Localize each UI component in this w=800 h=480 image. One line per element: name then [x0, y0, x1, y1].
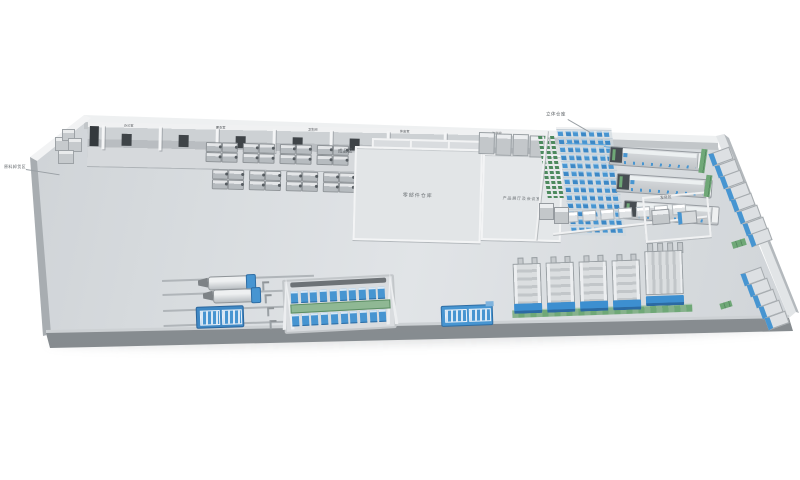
conveyor-stand [262, 281, 269, 290]
storage-bin [584, 155, 590, 160]
assembly-station [368, 287, 376, 299]
desk [228, 170, 244, 180]
storage-bin [606, 148, 612, 153]
assembly-station [378, 287, 386, 299]
desk [249, 180, 265, 190]
storage-bin [608, 164, 614, 169]
door-opening [178, 135, 188, 147]
storage-bin [560, 147, 566, 152]
desk [212, 179, 228, 189]
assembly-station [369, 310, 377, 322]
assembly-line [282, 274, 397, 334]
right-wall-machine [708, 147, 733, 167]
workbench [618, 207, 633, 219]
office-room-label: 休息室 [400, 129, 410, 134]
desk [323, 172, 339, 182]
door-opening [122, 134, 132, 146]
cable-line [604, 146, 695, 158]
desk [286, 181, 302, 191]
storage-bin [563, 171, 569, 176]
storage-bin [598, 148, 604, 153]
desk [206, 142, 222, 152]
desk [259, 143, 275, 153]
desk-cluster [249, 170, 280, 190]
partition-wall [158, 126, 162, 150]
press-base [646, 295, 684, 306]
desk [222, 142, 238, 152]
storage-bin [571, 171, 577, 176]
crate [58, 150, 74, 164]
desk [323, 182, 339, 192]
assembly-station [339, 289, 347, 301]
desk [339, 172, 355, 182]
storage-bin [565, 131, 571, 136]
storage-bin [583, 203, 589, 208]
desk-cluster [323, 172, 354, 192]
office-room-label: 更衣室 [216, 125, 226, 130]
lathe-body [213, 288, 255, 303]
storage-bin [594, 172, 600, 177]
storage-bin [572, 179, 578, 184]
desk [212, 169, 228, 179]
storage-bin [591, 203, 597, 208]
utility-machine [554, 207, 569, 224]
storage-bin [587, 179, 593, 184]
desk [242, 153, 258, 163]
storage-bin [591, 148, 597, 153]
green-rack-strip [703, 175, 712, 198]
machine-pad [469, 308, 491, 322]
storage-bin [612, 188, 618, 193]
desk-area [205, 142, 356, 201]
packing-machine [441, 304, 494, 327]
storage-bin [605, 196, 611, 201]
production-line-part [619, 176, 623, 187]
storage-bin [559, 139, 565, 144]
green-pallet [731, 238, 746, 249]
storage-bin [558, 131, 564, 136]
assembly-top-rail [290, 278, 386, 288]
showroom-label: 产品展厅及会议室 [503, 194, 542, 201]
assembly-station [340, 312, 348, 324]
assembly-station [331, 312, 339, 324]
lathe-hopper [198, 278, 208, 288]
lathe-cap [251, 287, 262, 303]
desk [205, 152, 221, 162]
desk [265, 181, 281, 191]
warehouse-room: 零部件仓库 [353, 146, 483, 243]
desk-cluster [242, 143, 273, 163]
cabinet [478, 132, 495, 154]
conveyor-stand [265, 294, 272, 303]
outside-area-label: 原料卸货区 [4, 163, 26, 169]
assembly-station [300, 291, 308, 303]
press-base [613, 299, 641, 310]
storage-bin [592, 156, 598, 161]
production-line-part [623, 153, 627, 157]
assembly-station [310, 290, 318, 302]
storage-bin [585, 163, 591, 168]
desk [296, 144, 312, 154]
storage-bin [597, 196, 603, 201]
storage-bin [564, 179, 570, 184]
storage-bin [578, 163, 584, 168]
press-base [547, 302, 575, 313]
assembly-station [360, 311, 368, 323]
assembly-station [349, 288, 357, 300]
storage-bin [611, 180, 617, 185]
right-wall-machine [740, 267, 765, 287]
storage-bin [596, 188, 602, 193]
storage-bin [561, 155, 567, 160]
office-room-label: 卫生间 [308, 127, 318, 132]
storage-bin [590, 195, 596, 200]
production-line-part [630, 176, 704, 185]
storage-bin [565, 187, 571, 192]
desk-cluster [206, 142, 237, 162]
right-wall-machine [714, 158, 739, 178]
desk [339, 182, 355, 192]
storage-bin [617, 228, 623, 233]
press-machine [545, 256, 575, 311]
assembly-station [321, 313, 329, 325]
desk [316, 155, 332, 165]
storage-bin [581, 187, 587, 192]
right-wall-machine [720, 170, 745, 190]
press-body [645, 251, 682, 294]
assembly-station [311, 313, 319, 325]
right-wall-machine [758, 300, 783, 320]
desk-cluster [212, 169, 243, 189]
shipping-room: 发货区 [642, 191, 712, 243]
press-body [547, 263, 574, 303]
desk-cluster [279, 144, 310, 164]
lathe-machine [203, 287, 261, 303]
workbench [600, 209, 615, 221]
desk [332, 155, 348, 165]
machine-pad [200, 310, 221, 326]
storage-bin [607, 156, 613, 161]
machine-tab [486, 301, 494, 306]
assembly-station-row-top [291, 286, 388, 300]
storage-bin [595, 180, 601, 185]
storage-bin [604, 188, 610, 193]
conveyor-stand [267, 307, 274, 316]
press-body [580, 262, 607, 302]
right-wall-machine [748, 228, 773, 248]
press-machine [611, 253, 641, 308]
assembly-station [350, 311, 358, 323]
machine-pad [222, 309, 243, 325]
storage-bin [570, 163, 576, 168]
desk [221, 152, 237, 162]
storage-bin [586, 171, 592, 176]
storage-bin [582, 195, 588, 200]
assembly-station [329, 289, 337, 301]
storage-bin [562, 163, 568, 168]
storage-bin [575, 147, 581, 152]
desk [286, 171, 302, 181]
storage-bin [575, 203, 581, 208]
press-base [514, 303, 542, 314]
storage-bin [610, 172, 616, 177]
storage-bin [580, 179, 586, 184]
assembly-station [292, 314, 300, 326]
assembly-station [358, 288, 366, 300]
storage-bin [589, 187, 595, 192]
storage-bin [599, 204, 605, 209]
utility-machine [539, 203, 554, 220]
desk [302, 182, 318, 192]
desk [249, 170, 265, 180]
storage-bin [579, 171, 585, 176]
storage-bin [603, 180, 609, 185]
press-machine [578, 255, 608, 310]
conveyor-stand [269, 320, 276, 329]
storage-bin [601, 164, 607, 169]
press-body [514, 264, 541, 304]
storage-bin [596, 132, 602, 137]
storage-bin [602, 172, 608, 177]
desk [258, 153, 274, 163]
storage-bin [574, 195, 580, 200]
shipping-label: 发货区 [660, 193, 672, 200]
storage-bin [593, 164, 599, 169]
press-machine-wide [644, 242, 684, 305]
partition-wall [101, 125, 105, 149]
right-wall-machine [736, 205, 761, 225]
assembly-station [379, 310, 387, 322]
production-line-part [624, 161, 696, 169]
desk [279, 154, 295, 164]
production-line-part [711, 207, 719, 222]
finished-area-label: 成品区 [338, 147, 353, 154]
lathe-hopper [203, 291, 213, 301]
factory-layout-scene: 原料卸货区 办公室更衣室卫生间休息室工具间 成品区 空调间空压间配电间 零部件仓… [0, 0, 800, 480]
desk [295, 154, 311, 164]
assembly-station [291, 291, 299, 303]
shipping-machine [651, 209, 670, 226]
office-room-label: 办公室 [124, 123, 134, 128]
right-wall-machine [731, 193, 756, 213]
storage-bin [573, 131, 579, 136]
storage-bin [583, 147, 589, 152]
storage-bin [576, 155, 582, 160]
cabinet [495, 133, 512, 155]
right-wall-machine [725, 181, 750, 201]
right-wall-machine [746, 278, 771, 298]
twin-station-machine [196, 305, 245, 329]
desk [228, 180, 244, 190]
press-line-zone [510, 239, 708, 326]
desk [302, 172, 318, 182]
cabinet [512, 134, 529, 156]
storage-bin [600, 156, 606, 161]
right-wall-machine [752, 289, 777, 309]
assembly-station [320, 290, 328, 302]
storage-bin [568, 147, 574, 152]
storage-bin [567, 195, 573, 200]
storage-bin [613, 196, 619, 201]
crate-stack [55, 129, 87, 165]
desk-cluster [286, 171, 317, 191]
outside-label-leader-line [26, 169, 60, 175]
storage-bin [569, 155, 575, 160]
production-line [609, 146, 706, 172]
desk [317, 145, 333, 155]
storage-bin [573, 187, 579, 192]
press-body [613, 261, 640, 301]
warehouse-label: 零部件仓库 [403, 191, 433, 199]
dock-door [89, 126, 98, 146]
storage-bin [581, 131, 587, 136]
desk [265, 171, 281, 181]
shipping-machine [677, 210, 697, 225]
production-line-part [630, 180, 634, 184]
press-machine [512, 257, 542, 312]
desk [243, 143, 259, 153]
right-wall-machine [742, 216, 767, 236]
green-rack-strip [698, 149, 707, 174]
building-shadow [48, 316, 784, 353]
green-pallet [719, 300, 732, 309]
machine-pad [445, 309, 467, 323]
desk [280, 144, 296, 154]
workbench [582, 210, 597, 222]
asrs-label: 立体仓库 [546, 110, 566, 117]
storage-bin [604, 132, 610, 137]
press-base [580, 301, 608, 312]
assembly-station [301, 314, 309, 326]
